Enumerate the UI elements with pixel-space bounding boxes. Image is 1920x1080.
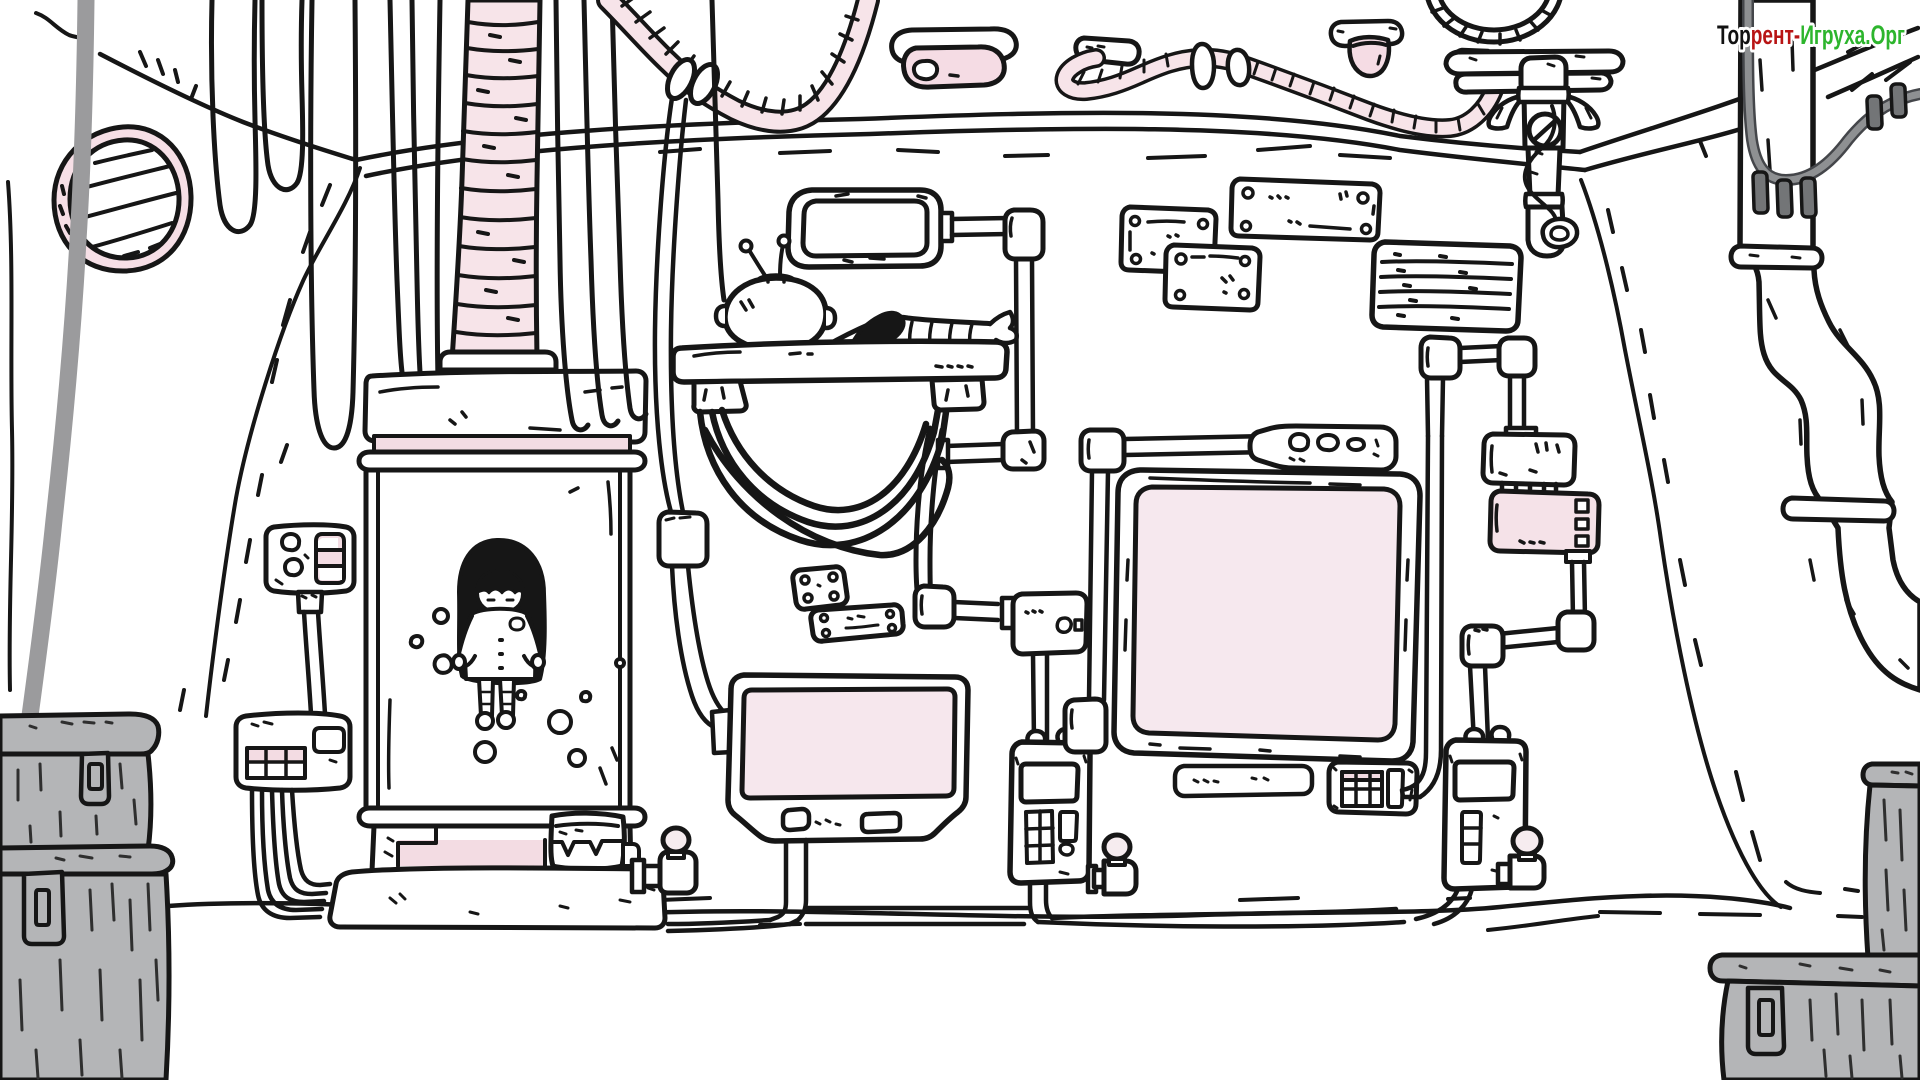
svg-text:Торрент-Игруха.Орг: Торрент-Игруха.Орг — [1717, 20, 1905, 50]
